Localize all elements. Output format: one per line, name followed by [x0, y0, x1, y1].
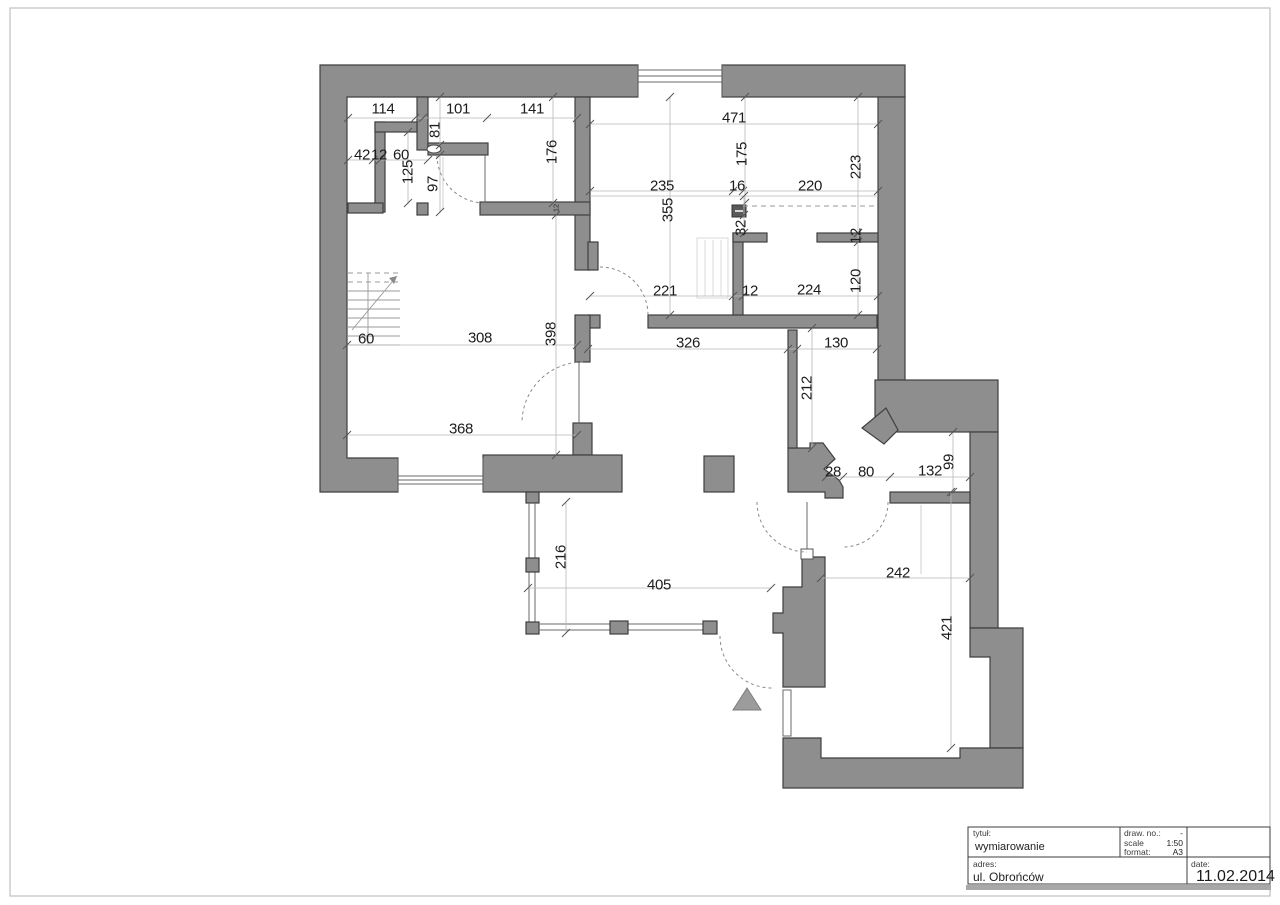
format-label: format:	[1124, 847, 1150, 857]
dimension-label: 16	[729, 177, 745, 194]
dimension-label: 12	[371, 146, 387, 163]
dimension-label: 175	[733, 142, 750, 166]
title-block-shadow	[966, 885, 1271, 890]
dimension-label: 12	[552, 204, 561, 212]
dimension-label: 398	[542, 322, 559, 346]
address-value: ul. Obrońców	[973, 870, 1044, 884]
walls	[320, 65, 1023, 788]
dimension-label: 242	[886, 564, 910, 581]
dimension-label: 42	[354, 146, 370, 163]
windows	[398, 65, 813, 736]
dimension-label: 405	[647, 576, 671, 593]
construction-lines	[443, 157, 921, 574]
dimension-label: 12	[742, 282, 758, 299]
format-value: A3	[1173, 847, 1184, 857]
dimension-label: 216	[552, 545, 569, 569]
draw-no-label: draw. no.:	[1124, 828, 1161, 838]
dimension-label: 99	[940, 454, 957, 470]
dimension-label: 176	[543, 140, 560, 164]
date-value: 11.02.2014	[1196, 868, 1275, 885]
stair-direction-arrow-icon	[389, 276, 397, 284]
dimension-label: 125	[399, 160, 416, 184]
dimension-label: 32	[732, 220, 749, 236]
dimension-label: 28	[825, 463, 841, 480]
dimension-label: 97	[424, 176, 441, 192]
dimension-label: 132	[918, 462, 942, 479]
dimension-label: 224	[797, 281, 821, 298]
page-border	[10, 8, 1270, 896]
floor-plan-page: 1141011414714212608117617522312597235162…	[0, 0, 1280, 905]
dimension-label: 223	[847, 155, 864, 179]
dimension-labels: 1141011414714212608117617522312597235162…	[354, 100, 957, 640]
title-label: tytuł:	[973, 828, 991, 838]
shaft-outline	[697, 238, 728, 298]
dimension-label: 130	[824, 334, 848, 351]
dimension-label: 212	[798, 376, 815, 400]
title-value: wymiarowanie	[974, 841, 1045, 853]
address-label: adres:	[973, 859, 997, 869]
dimension-label: 114	[371, 100, 394, 117]
dimension-label: 81	[426, 122, 443, 138]
title-block: tytuł: wymiarowanie draw. no.: - scale 1…	[966, 827, 1275, 890]
dimension-label: 471	[722, 109, 746, 126]
dimension-label: 355	[659, 198, 676, 222]
floor-plan-drawing: 1141011414714212608117617522312597235162…	[0, 0, 1280, 905]
dimension-label: 220	[798, 177, 822, 194]
dimension-label: 368	[449, 420, 473, 437]
draw-no-value: -	[1180, 828, 1183, 838]
dimension-label: 12	[847, 228, 864, 244]
dimension-label: 120	[847, 269, 864, 293]
dimension-label: 141	[520, 100, 544, 117]
entrance-arrow-icon	[733, 688, 761, 710]
dimension-label: 221	[653, 282, 677, 299]
dimension-label: 235	[650, 177, 674, 194]
dimension-label: 80	[858, 463, 874, 480]
dimension-label: 421	[938, 616, 955, 640]
dimension-label: 60	[358, 330, 374, 347]
dimension-label: 308	[468, 329, 492, 346]
dimension-label: 326	[676, 334, 700, 351]
dimension-label: 101	[446, 100, 470, 117]
